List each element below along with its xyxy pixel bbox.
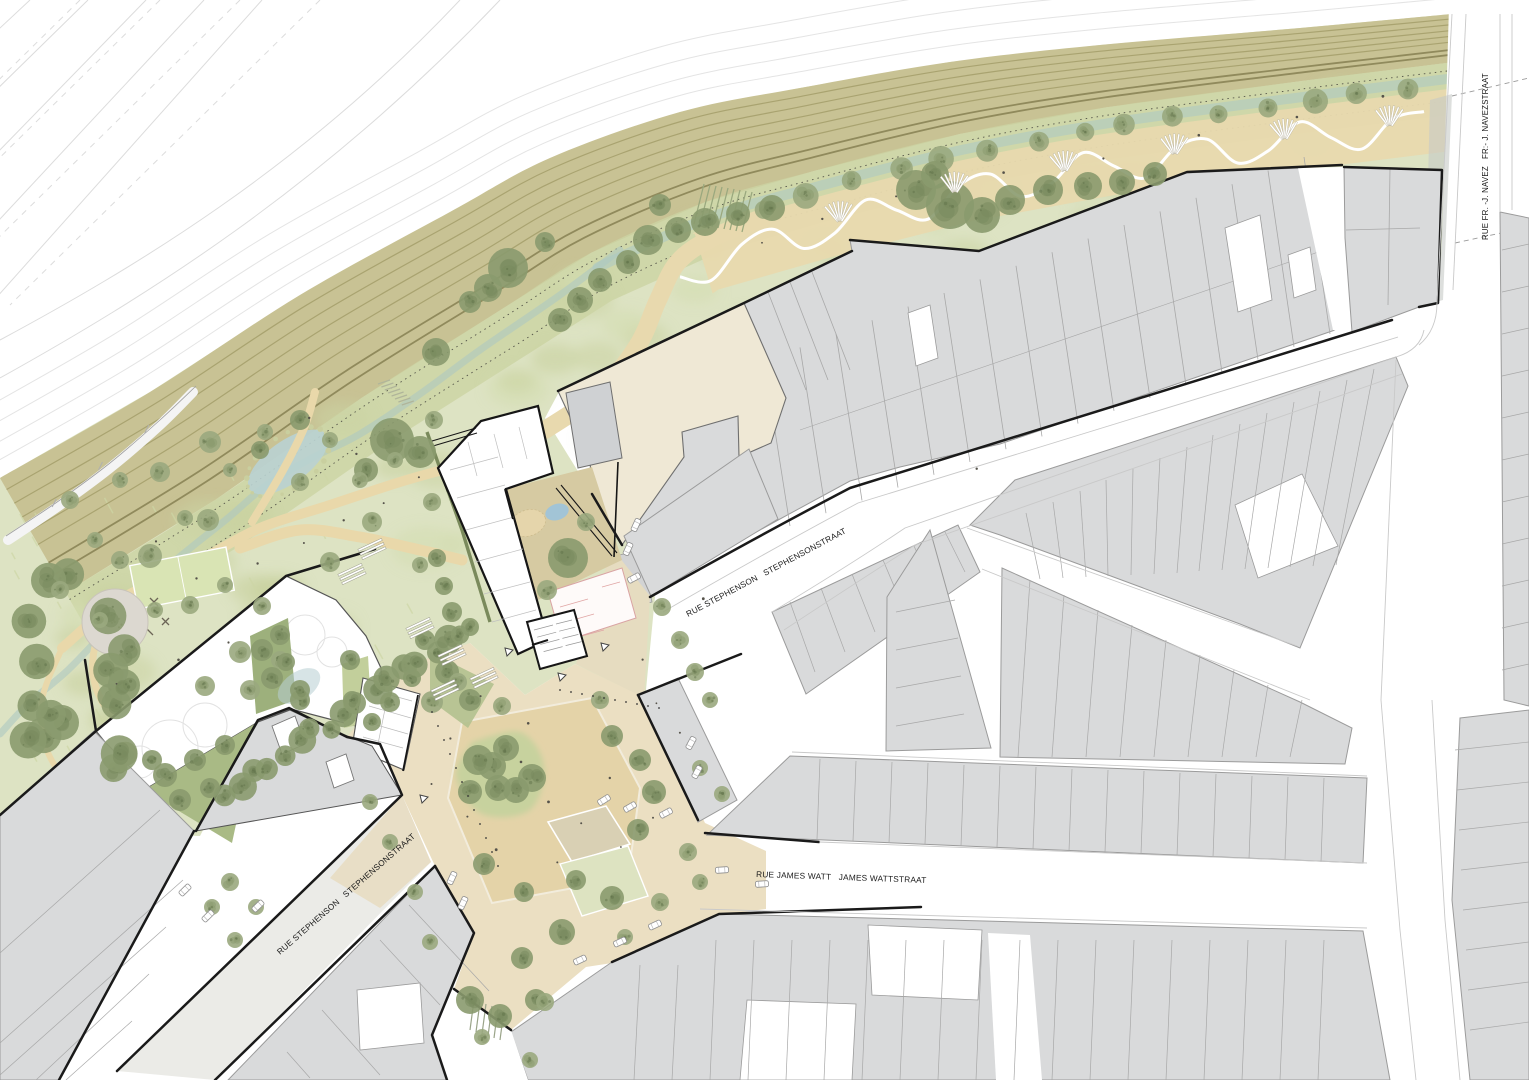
svg-text:RUE FR. -J. NAVEZ FR:- J. NA: RUE FR. -J. NAVEZ FR:- J. NAVEZSTRAAT — [1481, 73, 1490, 240]
